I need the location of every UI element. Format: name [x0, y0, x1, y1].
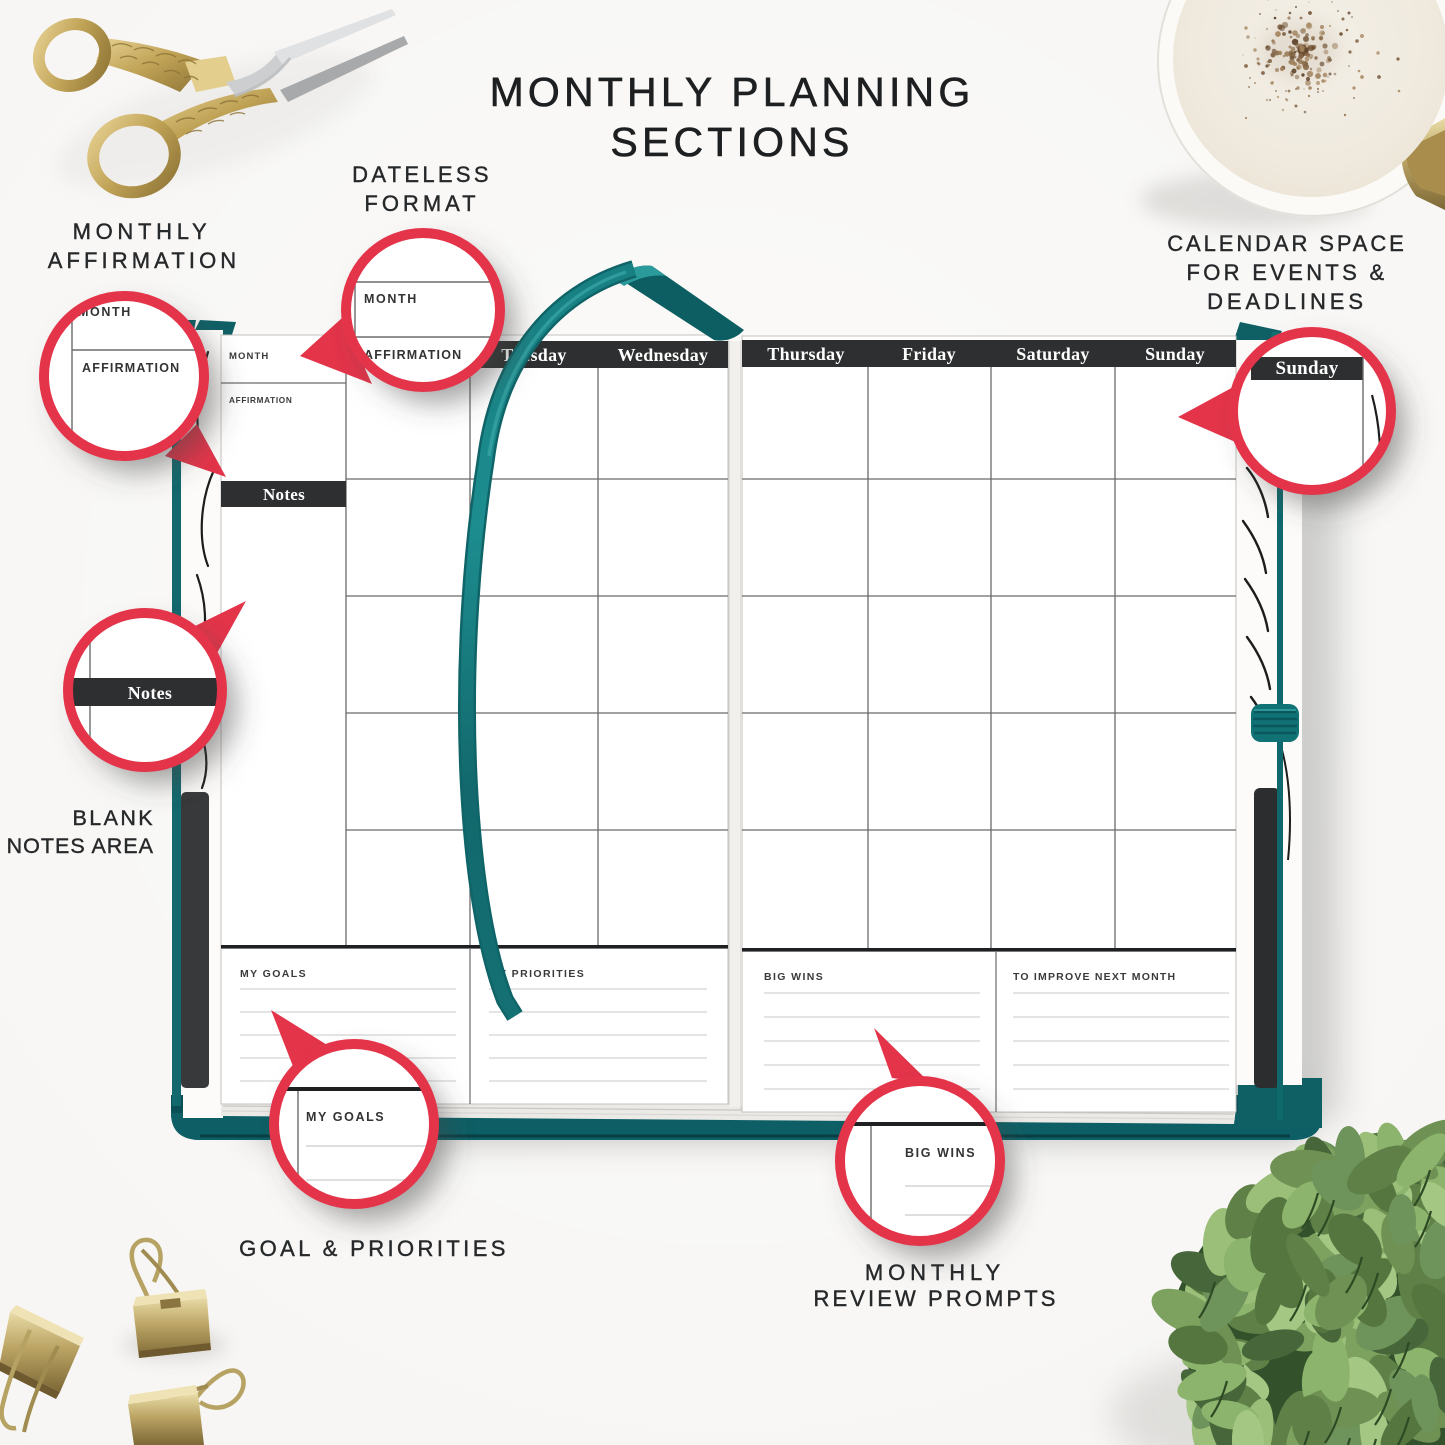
- svg-text:MONTHLY: MONTHLY: [865, 1260, 1005, 1285]
- svg-text:Saturday: Saturday: [1016, 344, 1089, 364]
- svg-text:MONTHLY: MONTHLY: [73, 219, 212, 244]
- svg-text:NOTES AREA: NOTES AREA: [7, 834, 154, 858]
- svg-text:MONTH: MONTH: [229, 351, 269, 362]
- svg-text:MY GOALS: MY GOALS: [240, 968, 307, 980]
- svg-text:MY GOALS: MY GOALS: [306, 1110, 385, 1124]
- svg-text:TO IMPROVE NEXT MONTH: TO IMPROVE NEXT MONTH: [1013, 971, 1176, 983]
- svg-text:BIG WINS: BIG WINS: [905, 1146, 976, 1160]
- svg-text:Notes: Notes: [263, 485, 305, 504]
- svg-text:AFFIRMATION: AFFIRMATION: [82, 361, 180, 375]
- svg-text:AFFIRMATION: AFFIRMATION: [48, 248, 241, 273]
- svg-text:DEADLINES: DEADLINES: [1207, 289, 1367, 314]
- svg-text:Wednesday: Wednesday: [618, 345, 709, 365]
- svg-text:AFFIRMATION: AFFIRMATION: [364, 348, 462, 362]
- svg-text:REVIEW PROMPTS: REVIEW PROMPTS: [813, 1286, 1058, 1311]
- svg-text:Notes: Notes: [128, 683, 173, 703]
- svg-text:Sunday: Sunday: [1145, 344, 1205, 364]
- svg-text:Friday: Friday: [902, 344, 956, 364]
- svg-text:AFFIRMATION: AFFIRMATION: [229, 396, 292, 405]
- svg-text:FOR EVENTS &: FOR EVENTS &: [1187, 260, 1388, 285]
- svg-text:Thursday: Thursday: [767, 344, 844, 364]
- svg-text:BIG WINS: BIG WINS: [764, 971, 824, 983]
- svg-text:GOAL & PRIORITIES: GOAL & PRIORITIES: [239, 1236, 509, 1261]
- svg-text:MONTH: MONTH: [364, 292, 418, 306]
- svg-text:SECTIONS: SECTIONS: [610, 119, 853, 165]
- svg-text:FORMAT: FORMAT: [364, 191, 479, 216]
- svg-text:BLANK: BLANK: [72, 806, 155, 830]
- svg-text:DATELESS: DATELESS: [352, 162, 492, 187]
- svg-text:CALENDAR SPACE: CALENDAR SPACE: [1167, 231, 1406, 256]
- svg-text:Sunday: Sunday: [1275, 358, 1338, 379]
- svg-text:MONTHLY PLANNING: MONTHLY PLANNING: [490, 69, 975, 115]
